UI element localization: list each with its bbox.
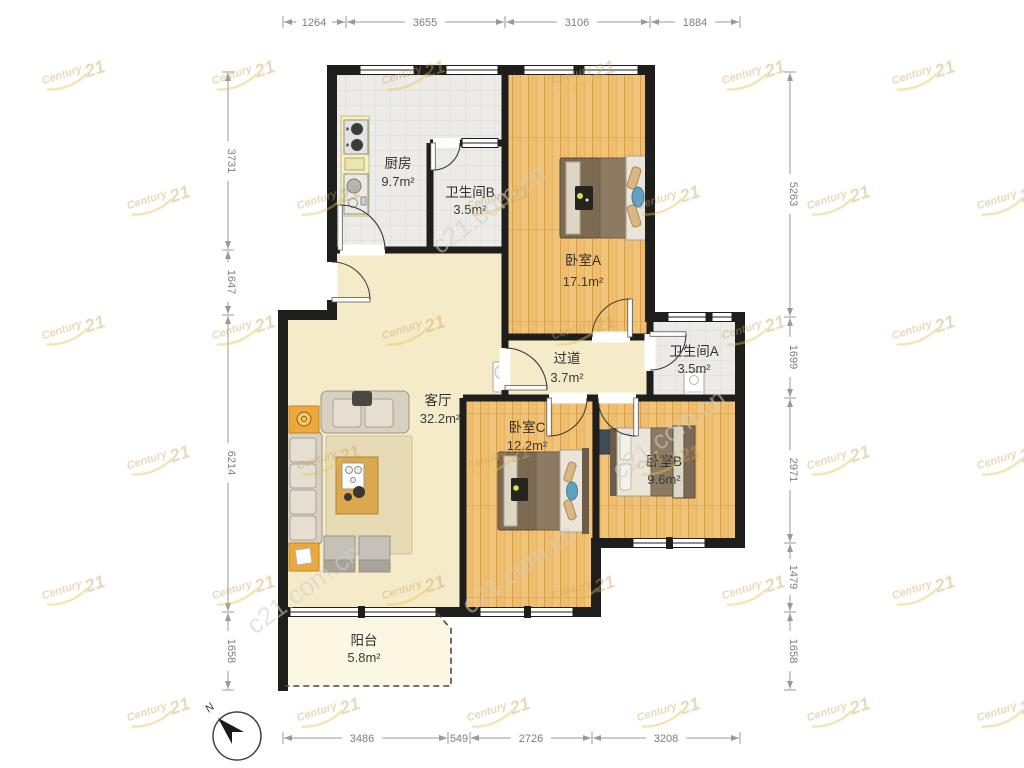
bed-icon (560, 154, 653, 242)
dimension-label: 3106 (565, 17, 589, 29)
dimension-label: 2726 (519, 733, 543, 745)
room-area-hallway: 3.7m² (550, 370, 584, 385)
floor-plan-page: Century 21 (0, 0, 1024, 768)
room-label-bedroom-a: 卧室A (565, 252, 601, 268)
room-label-bath-a: 卫生间A (669, 344, 719, 359)
window (480, 606, 573, 618)
dimension-label: 1658 (787, 639, 799, 663)
dimension-label: 3208 (654, 733, 678, 745)
dimension-label: 1884 (683, 17, 707, 29)
room-label-balcony: 阳台 (351, 633, 378, 648)
dimension-label: 6214 (225, 451, 237, 475)
dimension-label: 3731 (225, 149, 237, 173)
dimension-label: 1699 (787, 345, 799, 369)
room-label-living: 客厅 (425, 392, 452, 408)
window (462, 139, 498, 148)
room-area-bedroom-a: 17.1m² (563, 274, 604, 289)
room-area-balcony: 5.8m² (347, 650, 381, 665)
balcony-door-window (290, 606, 436, 618)
dimension-label: 3486 (350, 733, 374, 745)
floor-plan-canvas: Century 21 (0, 0, 1024, 768)
room-area-kitchen: 9.7m² (381, 174, 415, 189)
dimension-top: 1264 3655 3106 1884 (283, 16, 740, 29)
window (633, 537, 705, 549)
dimension-right: 5263 1699 2971 1479 1658 (784, 72, 799, 690)
dimension-label: 1658 (225, 639, 237, 663)
dimension-bottom: 3486 549 2726 3208 (283, 732, 740, 745)
dimension-label: 3655 (413, 17, 437, 29)
compass-north-label: N (203, 701, 217, 715)
compass-icon: N (203, 701, 261, 760)
room-label-hallway: 过道 (554, 351, 581, 366)
kitchen-appliance-icon (345, 158, 364, 170)
room-label-bedroom-c: 卧室C (509, 419, 546, 435)
dimension-label: 1647 (225, 270, 237, 294)
dimension-label: 2971 (787, 458, 799, 482)
dimension-label: 5263 (787, 182, 799, 206)
room-area-living: 32.2m² (420, 411, 461, 426)
dimension-label: 1264 (302, 17, 326, 29)
window (668, 313, 732, 322)
room-label-kitchen: 厨房 (385, 156, 412, 171)
dimension-label: 1479 (787, 565, 799, 589)
stove-icon (344, 120, 368, 154)
dimension-label: 549 (450, 733, 468, 745)
room-area-bath-a: 3.5m² (677, 361, 711, 376)
